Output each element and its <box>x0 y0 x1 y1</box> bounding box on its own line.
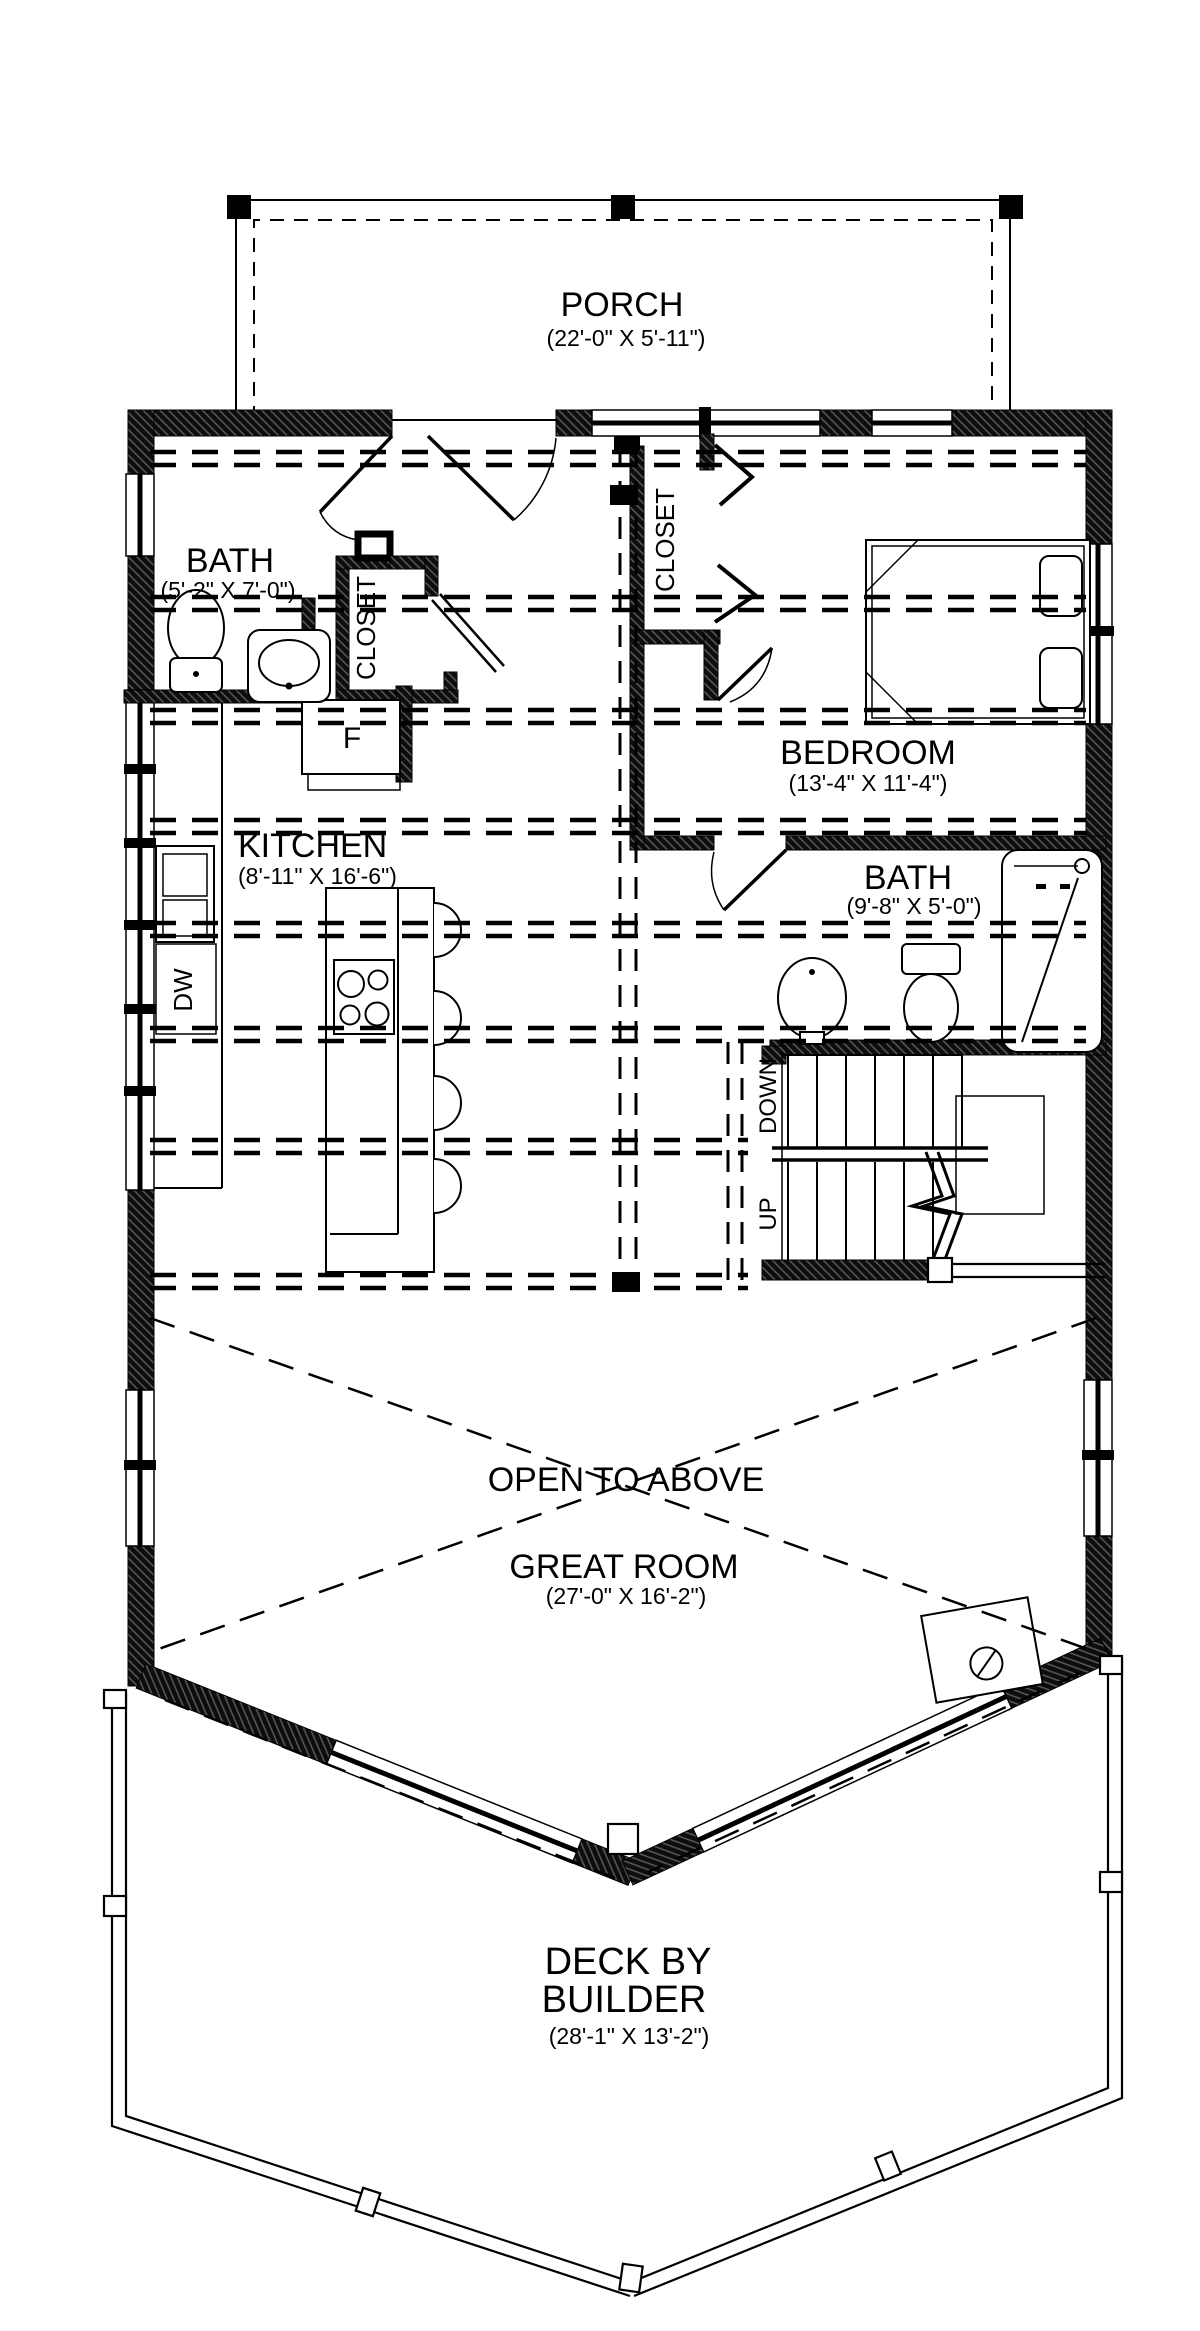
kitchen-label: KITCHEN <box>238 827 387 865</box>
floor-plan: PORCH (22'-0" X 5'-11") BATH (5'-2" X 7'… <box>0 0 1200 2331</box>
wall-top <box>952 410 1108 436</box>
kitchen-island <box>326 888 461 1272</box>
labels: PORCH (22'-0" X 5'-11") BATH (5'-2" X 7'… <box>160 286 981 2049</box>
deck-post <box>619 2264 642 2293</box>
door-leaf <box>428 436 514 520</box>
deck-post <box>104 1690 126 1708</box>
kitchen-dims: (8'-11" X 16'-6") <box>238 863 397 889</box>
stair-post <box>928 1258 952 1282</box>
door-leaf <box>724 850 786 910</box>
kitchen-fixtures <box>154 686 461 1272</box>
wall-left <box>128 1546 154 1686</box>
bedroom-closet-walls <box>630 434 755 850</box>
wall-top <box>128 410 392 436</box>
stove-icon <box>921 1597 1043 1702</box>
window-top-right <box>872 410 952 436</box>
stairs-up-label: UP <box>755 1197 782 1230</box>
stair-treads-up <box>788 1162 933 1262</box>
open-to-above-label: OPEN TO ABOVE <box>488 1461 765 1499</box>
window-greatroom-left <box>124 1390 156 1546</box>
closet-angled-door <box>440 594 504 666</box>
bay-vertex-post <box>608 1824 638 1854</box>
bifold-door <box>715 565 755 622</box>
wall-left <box>128 556 154 690</box>
great-room-dims: (27'-0" X 16'-2") <box>546 1583 707 1609</box>
deck-post <box>1100 1872 1122 1892</box>
deck-dims: (28'-1" X 13'-2") <box>549 2023 710 2049</box>
bedroom-closet-label: CLOSET <box>650 488 680 592</box>
porch-label: PORCH <box>561 286 684 324</box>
sink-icon <box>248 630 330 702</box>
ridge-post <box>610 485 638 505</box>
pillow <box>1040 556 1082 616</box>
stool-icon <box>434 1159 461 1213</box>
shower-icon <box>1002 850 1102 1052</box>
ridge-post <box>612 1272 640 1292</box>
door-swing-arc <box>320 512 358 540</box>
fridge-label: F <box>343 722 361 755</box>
bath-upper-label: BATH <box>186 542 274 580</box>
bath-main-label: BATH <box>864 859 952 897</box>
stair-treads-down <box>782 1055 962 1148</box>
porch-post <box>227 195 251 219</box>
bed-icon <box>866 540 1090 724</box>
entry-closet-label: CLOSET <box>351 576 381 680</box>
deck-post <box>104 1896 126 1916</box>
wall-right <box>1086 410 1112 544</box>
bath-upper-dims: (5'-2" X 7'-0") <box>160 577 295 603</box>
stool-icon <box>434 1076 461 1130</box>
bay-wall-left <box>136 1664 638 1885</box>
bedroom-dims: (13'-4" X 11'-4") <box>789 770 948 796</box>
door-swing-arc <box>712 852 724 910</box>
wall-top <box>820 410 872 436</box>
stairwell-opening <box>956 1096 1044 1214</box>
stair-wall <box>762 1260 946 1280</box>
pillow <box>1040 648 1082 708</box>
dishwasher-label: DW <box>168 968 198 1012</box>
stairs <box>762 1046 1106 1282</box>
great-room-label: GREAT ROOM <box>509 1548 738 1586</box>
bedroom-door <box>718 648 772 702</box>
porch-dims: (22'-0" X 5'-11") <box>547 325 706 351</box>
deck-post <box>875 2152 901 2181</box>
window-bath-left <box>126 474 154 556</box>
porch-post <box>611 195 635 219</box>
pedestal-sink-icon <box>778 958 846 1044</box>
kitchen-sink-icon <box>156 846 214 942</box>
door-leaf <box>320 436 392 512</box>
deck-post <box>1100 1656 1122 1674</box>
stool-icon <box>434 991 461 1045</box>
window-kitchen-band <box>124 690 156 1190</box>
deck-label-line1: DECK BY <box>545 1941 712 1983</box>
entry-doors <box>320 436 556 540</box>
window-greatroom-right <box>1082 1380 1114 1536</box>
porch-post <box>999 195 1023 219</box>
bath-main-dims: (9'-8" X 5'-0") <box>846 893 981 919</box>
stool-icon <box>434 903 461 957</box>
stairs-down-label: DOWN <box>755 1058 782 1134</box>
bedroom-label: BEDROOM <box>780 734 956 772</box>
toilet-icon <box>168 590 224 692</box>
wall-top <box>556 410 592 436</box>
deck-label-line2: BUILDER <box>542 1979 707 2021</box>
ridge-post <box>614 436 640 450</box>
cooktop-icon <box>334 960 394 1034</box>
